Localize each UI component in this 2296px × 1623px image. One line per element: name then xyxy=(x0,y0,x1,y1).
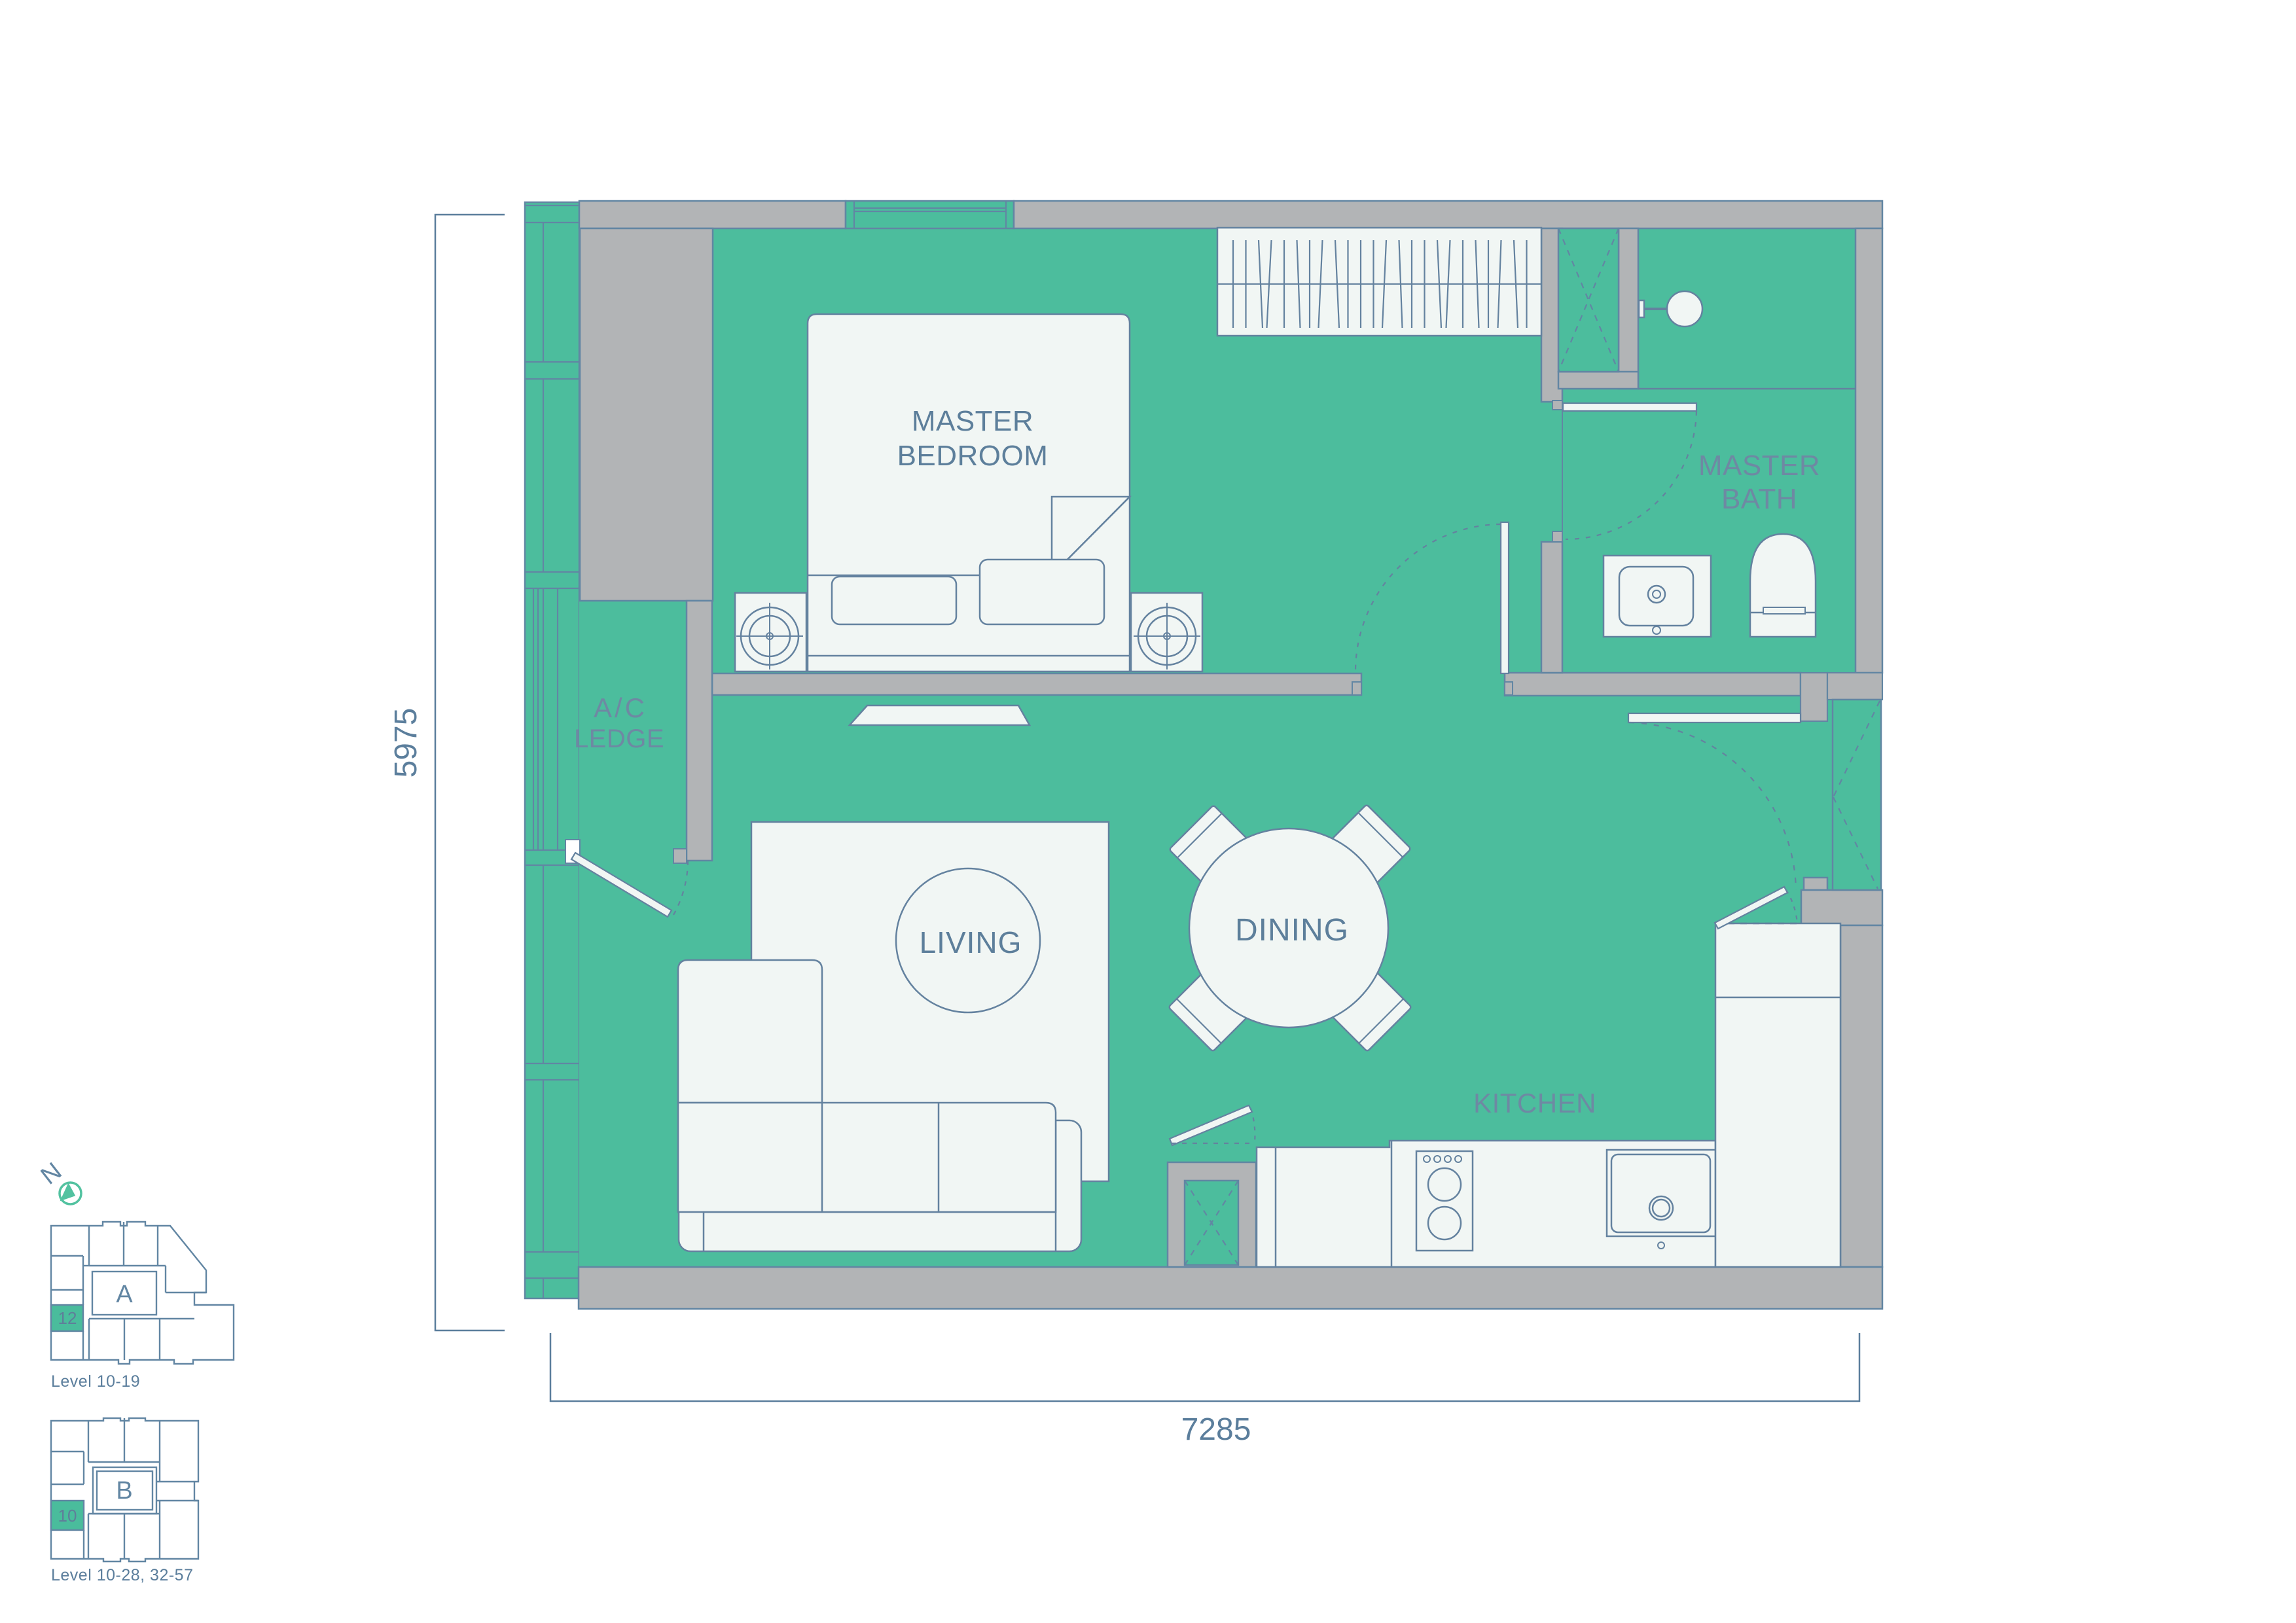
svg-text:A: A xyxy=(116,1281,133,1308)
svg-text:Level 10-28, 32-57: Level 10-28, 32-57 xyxy=(51,1566,193,1584)
svg-text:MASTER: MASTER xyxy=(1698,450,1820,482)
svg-text:12: 12 xyxy=(58,1308,77,1328)
svg-text:B: B xyxy=(116,1477,132,1505)
svg-text:MASTER: MASTER xyxy=(912,405,1033,437)
svg-text:7285: 7285 xyxy=(1181,1412,1251,1447)
svg-text:5975: 5975 xyxy=(389,708,423,778)
svg-text:Level 10-19: Level 10-19 xyxy=(51,1372,140,1391)
svg-text:A/C: A/C xyxy=(594,692,647,723)
svg-text:10: 10 xyxy=(58,1506,77,1525)
svg-text:BATH: BATH xyxy=(1721,483,1797,515)
svg-text:LEDGE: LEDGE xyxy=(574,724,664,753)
svg-text:LIVING: LIVING xyxy=(920,925,1022,959)
svg-text:KITCHEN: KITCHEN xyxy=(1473,1088,1596,1118)
svg-text:BEDROOM: BEDROOM xyxy=(897,440,1049,472)
svg-text:DINING: DINING xyxy=(1235,913,1349,948)
